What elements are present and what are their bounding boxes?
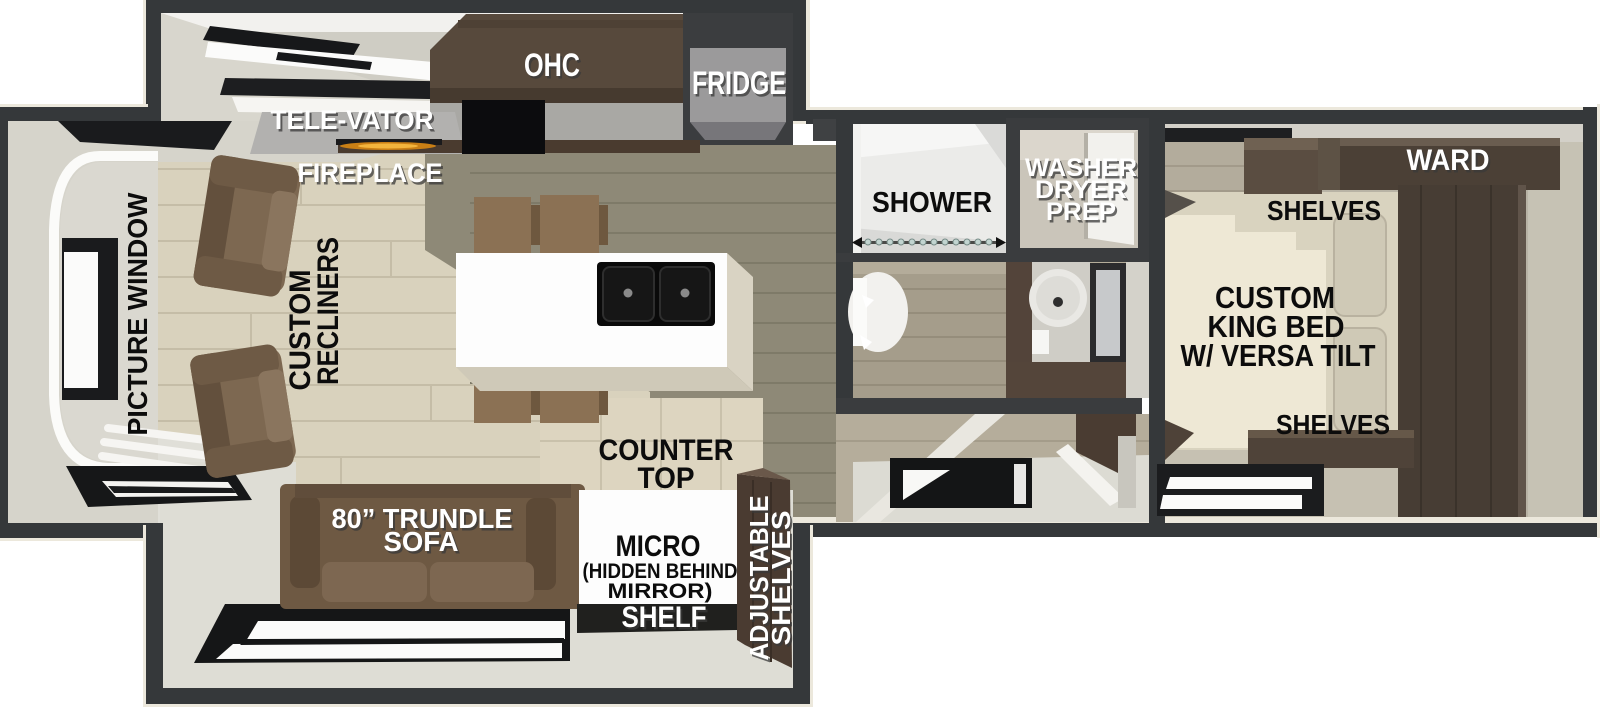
- svg-text:PREP: PREP: [1046, 198, 1116, 226]
- svg-text:TOP: TOP: [638, 462, 695, 495]
- svg-text:SHELF: SHELF: [622, 601, 707, 634]
- svg-text:W/ VERSA TILT: W/ VERSA TILT: [1181, 338, 1376, 373]
- svg-text:SHELVES: SHELVES: [766, 511, 796, 646]
- svg-text:MIRROR): MIRROR): [608, 580, 713, 603]
- svg-text:SHOWER: SHOWER: [872, 187, 992, 219]
- svg-text:FIREPLACE: FIREPLACE: [298, 158, 443, 188]
- svg-text:TELE-VATOR: TELE-VATOR: [271, 105, 434, 135]
- svg-text:OHC: OHC: [524, 47, 580, 83]
- svg-text:FRIDGE: FRIDGE: [692, 65, 786, 101]
- svg-text:WARD: WARD: [1407, 144, 1490, 177]
- svg-text:SHELVES: SHELVES: [1276, 409, 1390, 440]
- svg-text:SOFA: SOFA: [384, 526, 459, 557]
- svg-text:RECLINERS: RECLINERS: [312, 237, 345, 385]
- svg-text:MICRO: MICRO: [616, 530, 701, 563]
- svg-text:PICTURE WINDOW: PICTURE WINDOW: [122, 192, 153, 436]
- svg-text:SHELVES: SHELVES: [1267, 195, 1381, 226]
